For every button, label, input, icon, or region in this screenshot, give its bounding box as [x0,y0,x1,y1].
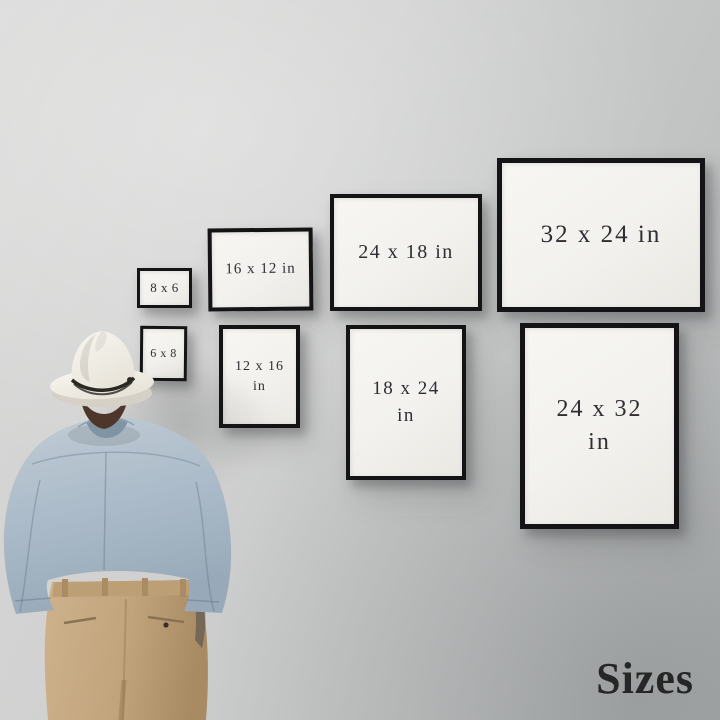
frame-8x6: 8 x 6 [137,268,192,308]
frame-size-label: 32 x 24 in [541,218,662,253]
fedora-hat [49,331,154,407]
frame-24x32: 24 x 32 in [520,323,679,529]
frame-size-label: 16 x 12 in [225,259,296,280]
frame-size-label: 24 x 32 [557,393,643,426]
frame-24x18: 24 x 18 in [330,194,482,311]
frame-size-label: 24 x 18 in [358,239,454,267]
waistband [52,580,198,597]
frame-size-unit: in [588,426,611,459]
frame-size-unit: in [397,403,415,429]
frame-size-label: 18 x 24 [372,376,440,402]
pocket-button [163,622,168,627]
frame-32x24: 32 x 24 in [497,158,705,312]
frame-size-label: 8 x 6 [150,279,179,297]
size-guide-photo: 8 x 6 16 x 12 in 24 x 18 in 32 x 24 in 6… [0,0,720,720]
man-figure [0,322,235,720]
sizes-watermark: Sizes [596,653,694,704]
frame-18x24: 18 x 24 in [346,325,466,480]
frame-16x12: 16 x 12 in [208,227,314,311]
trousers [45,578,208,720]
